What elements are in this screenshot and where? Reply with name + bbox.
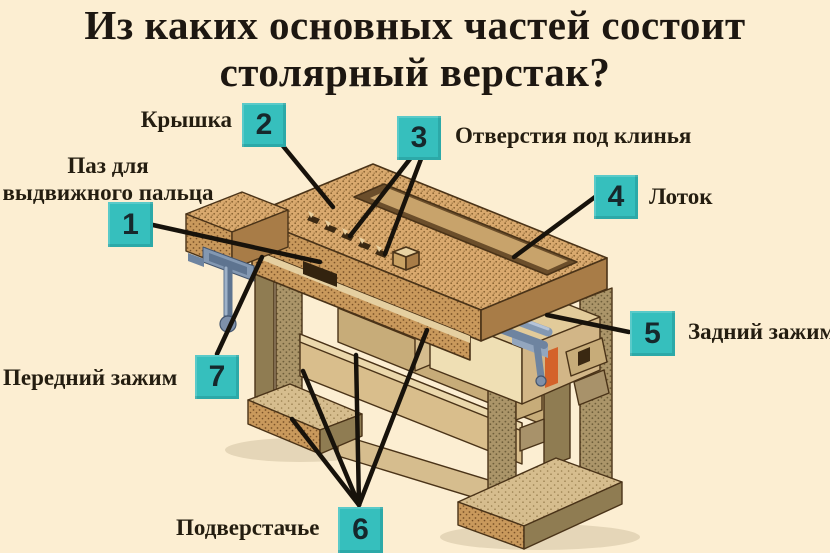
page-title-line1: Из каких основных частей состоит — [0, 2, 830, 49]
callout-box-5: 5 — [630, 311, 675, 356]
label-wedge-holes: Отверстия под клинья — [455, 122, 691, 149]
callout-box-1: 1 — [108, 202, 153, 247]
callout-box-2: 2 — [242, 103, 286, 147]
label-groove: Паз для выдвижного пальца — [0, 152, 216, 206]
label-underframe: Подверстачье — [176, 514, 320, 541]
label-tray: Лоток — [649, 183, 713, 210]
leader-line-6c — [356, 355, 359, 505]
page-title-line2: столярный верстак? — [0, 49, 830, 96]
callout-box-6: 6 — [338, 507, 383, 553]
callout-box-3: 3 — [397, 116, 441, 160]
label-rear-clamp: Задний зажим — [688, 318, 830, 345]
wedge-block — [393, 247, 419, 270]
callout-box-4: 4 — [594, 175, 638, 219]
label-top: Крышка — [115, 106, 232, 133]
slide: Из каких основных частей состоит столярн… — [0, 0, 830, 553]
label-front-clamp: Передний зажим — [3, 364, 177, 391]
callout-box-7: 7 — [195, 355, 239, 399]
